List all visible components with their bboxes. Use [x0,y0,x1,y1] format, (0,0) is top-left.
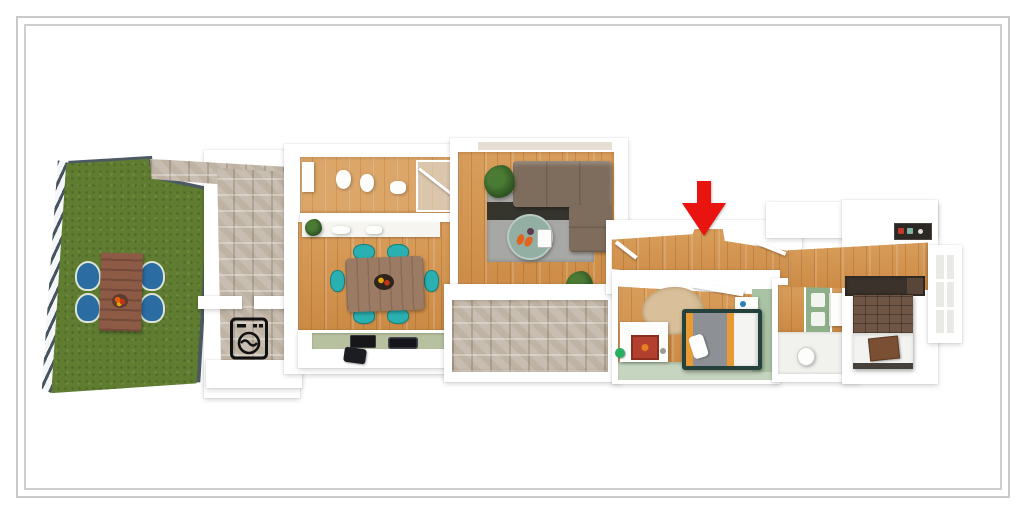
bathroom2-floor [778,332,852,374]
bathroom1-dividing-wall [300,213,460,222]
garden-chair [141,263,163,289]
cooktop [350,335,376,348]
kitchen-countertop [312,333,456,349]
living-top-ledge [478,142,612,150]
shelf-item [366,226,382,234]
patio-floor [452,300,608,372]
dresser [620,322,668,362]
bed2-headboard [853,295,913,333]
wardrobe-section [907,278,923,294]
dresser-artwork [631,335,659,360]
wardrobe-dark [845,276,925,296]
washing-machine-icon [229,316,269,360]
green-cabinet [806,287,830,334]
potted-plant-icon [305,219,322,236]
cabinet-panel [811,293,825,307]
dining-chair [331,271,344,291]
bed2-footboard [853,363,913,369]
laundry-shelf [198,296,242,309]
dining-chair [425,271,438,291]
table-fruit-plate [374,274,394,290]
bed1-linens [734,313,758,366]
garden-chair [77,263,99,289]
corner-sofa-back [513,161,612,207]
small-plant-dot [615,348,625,358]
counter-item [898,228,904,234]
breakfast-tray [868,335,900,361]
dining-chair [388,309,408,323]
toilet [336,170,351,189]
cabinet-panel [811,312,825,326]
counter-item [907,228,913,234]
window-mullion [944,253,947,335]
counter-item [918,229,923,234]
bed1 [682,309,762,370]
dresser-knob [660,348,666,354]
tablet [537,229,552,248]
toilet-2 [797,347,815,366]
garden-dining-table [99,252,143,331]
table-bowl [527,228,534,235]
bed1-stripe [727,313,734,366]
bidet [360,174,374,192]
kitchenette-counter [894,223,932,240]
bedroom2-window [928,245,962,343]
nightstand-item [740,301,746,307]
bathroom1-sink [390,181,406,194]
living-plant [484,165,515,198]
kitchen-sink [388,337,418,349]
bed2 [853,295,913,369]
fruit-plate [112,294,128,308]
red-location-arrow-icon [681,181,727,237]
garden-chair [141,295,163,321]
floor-plan-render [0,0,1024,512]
shelf-item [332,226,350,234]
kitchen-stool [343,347,367,365]
bathroom1-vanity [302,162,314,192]
garden-chair [77,295,99,321]
